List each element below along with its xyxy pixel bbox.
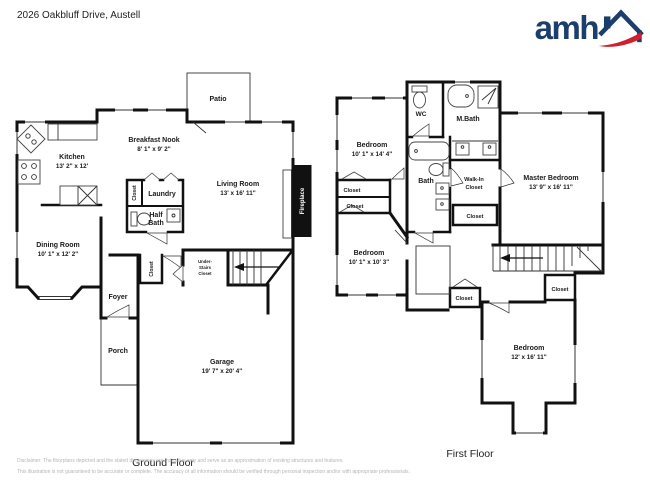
room-dims-living-room: 13' x 16' 11" <box>220 190 255 197</box>
ground-floor-plan: Fireplace <box>17 73 312 469</box>
room-label-walkin-1: Walk-In <box>464 177 484 183</box>
label-closet-left-lower: Closet <box>346 204 363 210</box>
first-floor-walls <box>337 82 603 433</box>
wc-fixtures <box>412 86 427 108</box>
label-under-stairs-1: Under- <box>198 259 212 264</box>
room-label-half-bath-2: Bath <box>148 220 164 227</box>
room-dims-bedroom-top: 10' 1" x 14' 4" <box>352 151 392 158</box>
room-label-master-bedroom: Master Bedroom <box>523 175 578 182</box>
floorplan-canvas: Fireplace <box>0 0 650 488</box>
label-closet-below-walkin: Closet <box>466 214 483 220</box>
label-closet-stairs: Closet <box>551 287 568 293</box>
room-label-bath: Bath <box>418 178 434 185</box>
room-dims-garage: 19' 7" x 20' 4" <box>202 368 242 375</box>
first-stairs <box>493 245 603 271</box>
room-dims-bedroom-bottom: 12' x 16' 11" <box>511 354 546 361</box>
label-under-stairs-3: Closet <box>198 271 212 276</box>
room-label-wc: WC <box>416 111 427 118</box>
room-label-half-bath-1: Half <box>149 212 163 219</box>
first-floor-label: First Floor <box>446 448 494 460</box>
first-floor-windows <box>337 82 603 433</box>
label-closet-hall: Closet <box>455 296 472 302</box>
room-dims-master-bedroom: 13' 9" x 16' 11" <box>529 184 573 191</box>
room-label-fireplace: Fireplace <box>300 187 306 214</box>
disclaimer-line-2: This illustration is not guaranteed to b… <box>17 469 410 475</box>
room-label-porch: Porch <box>108 348 128 355</box>
floorplan-page: 2026 Oakbluff Drive, Austell amh <box>0 0 650 488</box>
fireplace-hearth <box>283 170 292 238</box>
room-dims-dining-room: 10' 1" x 12' 2" <box>38 251 78 258</box>
first-floor-plan: Bedroom 10' 1" x 14' 4" WC M.Bath Master… <box>337 82 603 460</box>
ground-stairs <box>233 250 281 285</box>
room-label-dining-room: Dining Room <box>36 242 80 249</box>
room-label-bedroom-mid: Bedroom <box>354 250 385 257</box>
room-label-bedroom-top: Bedroom <box>357 142 388 149</box>
room-label-garage: Garage <box>210 359 234 366</box>
room-dims-kitchen: 13' 2" x 12' <box>56 163 89 170</box>
room-label-laundry-closet: Closet <box>132 185 138 201</box>
label-closet-left-upper: Closet <box>343 188 360 194</box>
room-label-foyer: Foyer <box>108 294 127 301</box>
room-label-bedroom-bottom: Bedroom <box>514 345 545 352</box>
room-dims-bedroom-mid: 10' 1" x 10' 3" <box>349 259 389 266</box>
room-label-kitchen: Kitchen <box>59 154 85 161</box>
room-label-foyer-closet: Closet <box>149 261 155 277</box>
bath-fixtures <box>409 142 449 210</box>
stair-railing <box>416 246 450 294</box>
label-under-stairs-2: Stairs <box>199 265 212 270</box>
stairs-arrow <box>234 263 244 271</box>
room-label-living-room: Living Room <box>217 181 259 188</box>
room-label-patio: Patio <box>209 96 226 103</box>
stairs-arrow <box>500 254 510 262</box>
room-label-laundry: Laundry <box>148 191 176 198</box>
room-dims-breakfast-nook: 8' 1" x 9' 2" <box>137 146 170 153</box>
room-label-breakfast-nook: Breakfast Nook <box>128 137 179 144</box>
room-label-mbath: M.Bath <box>456 116 479 123</box>
disclaimer-line-1: Disclaimer: The floorplans depicted and … <box>17 458 344 464</box>
room-label-walkin-2: Closet <box>465 185 482 191</box>
